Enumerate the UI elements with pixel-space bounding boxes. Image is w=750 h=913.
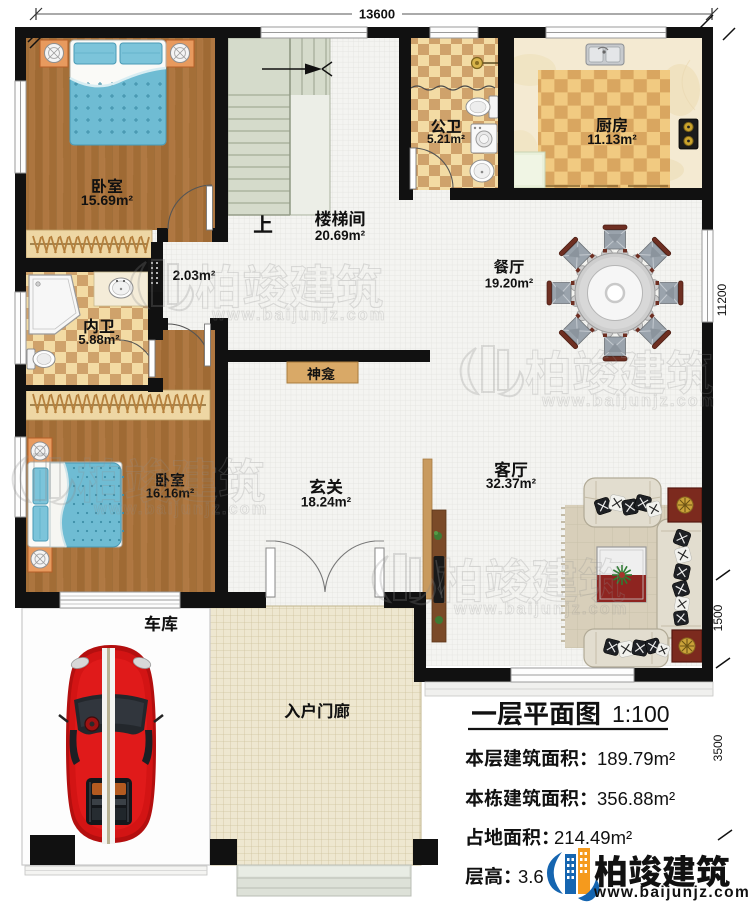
svg-text:19.20m²: 19.20m² <box>485 276 534 291</box>
svg-text:13600: 13600 <box>359 7 395 22</box>
svg-text:3500: 3500 <box>711 734 725 761</box>
svg-text:11200: 11200 <box>715 283 729 316</box>
svg-text:www.baijunjz.com: www.baijunjz.com <box>211 306 386 324</box>
svg-text:5.21m²: 5.21m² <box>427 132 465 146</box>
svg-text:189.79m²: 189.79m² <box>597 748 675 769</box>
svg-text:www.baijunjz.com: www.baijunjz.com <box>93 500 268 518</box>
svg-text:15.69m²: 15.69m² <box>81 192 133 208</box>
svg-text:www.baijunjz.com: www.baijunjz.com <box>541 392 716 410</box>
svg-text:5.88m²: 5.88m² <box>78 332 120 347</box>
svg-text:1500: 1500 <box>711 604 725 631</box>
svg-text:356.88m²: 356.88m² <box>597 788 675 809</box>
svg-text:www.baijunjz.com: www.baijunjz.com <box>453 600 628 618</box>
svg-text:www.baijunjz.com: www.baijunjz.com <box>593 884 750 901</box>
svg-text:20.69m²: 20.69m² <box>315 228 366 243</box>
svg-text:11.13m²: 11.13m² <box>587 132 637 147</box>
svg-text:32.37m²: 32.37m² <box>486 476 537 491</box>
svg-text:18.24m²: 18.24m² <box>301 495 352 510</box>
svg-text:214.49m²: 214.49m² <box>554 827 632 848</box>
svg-text:1:100: 1:100 <box>612 701 670 727</box>
